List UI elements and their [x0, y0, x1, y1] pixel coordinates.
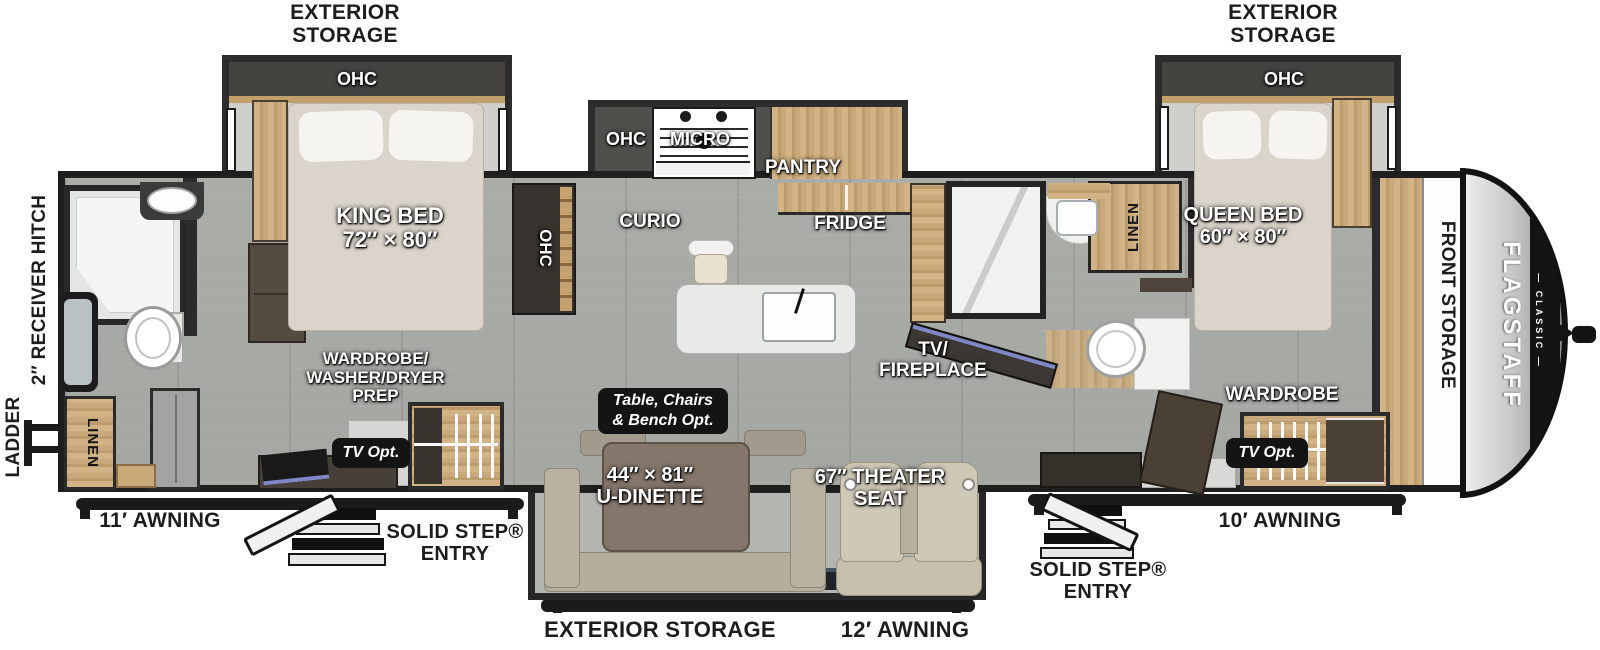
ladder-rung-top [28, 424, 60, 431]
label-line: U-DINETTE [565, 486, 735, 508]
theater-seat-label: 67″ THEATER SEAT [800, 466, 960, 510]
label-line: 67″ THEATER [800, 466, 960, 488]
queen-pillow-left [1201, 109, 1263, 161]
front-storage-label: FRONT STORAGE [1437, 190, 1457, 420]
queen-ohc-label: OHC [1254, 70, 1314, 90]
queen-slide-window-left [1159, 106, 1169, 170]
floorplan-canvas: EXTERIOR STORAGE EXTERIOR STORAGE LADDER… [0, 0, 1600, 650]
stove-knob-right [716, 111, 727, 122]
awning-front-label: 10′ AWNING [1200, 510, 1360, 533]
label-line: KING BED [310, 204, 470, 228]
king-slide-window-left [226, 108, 236, 172]
awning-mid-label: 12′ AWNING [830, 618, 980, 642]
ladder-label: LADDER [4, 384, 24, 490]
fridge-door-seam [845, 185, 848, 210]
rear-vanity-sink [147, 187, 197, 214]
island-stool-seat [694, 254, 728, 284]
king-side-cabinet [252, 100, 288, 242]
entry-front-label: SOLID STEP® ENTRY [1018, 560, 1178, 603]
label-line: STORAGE [1183, 25, 1383, 48]
rear-toilet-seat [135, 317, 171, 359]
oven-drawer [656, 161, 750, 175]
rear-window-glass [64, 299, 92, 385]
front-wardrobe-shelves [1326, 418, 1384, 484]
king-bed-label: KING BED 72″ × 80″ [310, 204, 470, 252]
theater-backrest [836, 556, 982, 596]
awning-rail-mid [541, 599, 975, 612]
rear-hanging-wardrobe [408, 402, 504, 490]
label-line: & Bench Opt. [612, 411, 713, 431]
label-line: SOLID STEP® [1018, 560, 1178, 582]
label-line: Table, Chairs [613, 391, 713, 411]
label-line: EXTERIOR [1183, 2, 1383, 25]
entry-rear-label: SOLID STEP® ENTRY [385, 522, 525, 565]
fridge-cabinet [778, 183, 912, 215]
curio-ohc-label: OHC [534, 208, 554, 288]
mid-sink [1056, 200, 1098, 236]
king-ohc-label: OHC [327, 70, 387, 90]
label-line: ENTRY [1018, 582, 1178, 604]
bottom-exterior-storage-label: EXTERIOR STORAGE [535, 618, 785, 642]
mid-sink-shelf [1048, 183, 1110, 199]
dinette-cushion-right [744, 430, 806, 456]
label-line: QUEEN BED [1168, 204, 1318, 226]
queen-slide-window-right [1387, 106, 1397, 170]
tv-fireplace-label: TV/ FIREPLACE [873, 340, 993, 382]
dinette-label: 44″ × 81″ U-DINETTE [565, 464, 735, 508]
mid-toilet-seat [1092, 326, 1139, 371]
hitch-knob-icon [1572, 326, 1596, 343]
table-option-badge: Table, Chairs & Bench Opt. [598, 388, 728, 434]
rear-slide-exterior-storage-label: EXTERIOR STORAGE [245, 2, 445, 47]
stove-knob-left [680, 111, 691, 122]
mid-half-wall [1140, 278, 1192, 292]
label-line: FIREPLACE [873, 361, 993, 382]
mid-shower-door-seam [952, 187, 1040, 313]
front-tv-opt-badge: TV Opt. [1226, 438, 1308, 468]
label-line: 60″ × 80″ [1168, 226, 1318, 248]
curio-shelves [560, 187, 572, 311]
queen-pillow-right [1267, 109, 1329, 161]
rear-toilet [124, 306, 182, 370]
rear-step-3 [292, 538, 384, 550]
queen-side-cabinet [1332, 98, 1372, 228]
brand-flagstaff: FLAGSTAFF [1499, 215, 1525, 435]
front-slide-exterior-storage-label: EXTERIOR STORAGE [1183, 2, 1383, 47]
label-line: WASHER/DRYER [283, 369, 468, 388]
front-step-4 [1040, 547, 1134, 559]
rear-linen-label: LINEN [81, 403, 101, 483]
rear-wardrobe-label: WARDROBE/ WASHER/DRYER PREP [283, 350, 468, 406]
washer-dryer-cabinet [150, 388, 200, 490]
micro-label: MICRO [658, 130, 742, 150]
king-slide-window-right [498, 108, 508, 172]
label-line: EXTERIOR [245, 2, 445, 25]
king-pillow-right [387, 109, 475, 164]
mid-bath-cabinet [910, 183, 946, 323]
fridge-label: FRIDGE [806, 214, 894, 235]
label-line: SOLID STEP® [385, 522, 525, 544]
label-line: 72″ × 80″ [310, 228, 470, 252]
label-line: 44″ × 81″ [565, 464, 735, 486]
curio-label: CURIO [610, 212, 690, 233]
theater-cupholder-right [962, 478, 975, 491]
entry-desk [1040, 452, 1142, 488]
label-line: TV/ [873, 340, 993, 361]
rail-foot-2 [508, 508, 518, 519]
mid-linen-label: LINEN [1125, 187, 1145, 267]
step-stool [116, 464, 156, 488]
label-line: PREP [283, 387, 468, 406]
receiver-hitch-label: 2″ RECEIVER HITCH [30, 180, 50, 400]
mid-shower [946, 181, 1046, 319]
rail-foot-4 [1392, 504, 1402, 515]
awning-rear-label: 11′ AWNING [75, 510, 245, 533]
label-line: SEAT [800, 488, 960, 510]
rear-window [58, 292, 98, 392]
wardrobe-hangers [446, 414, 496, 478]
label-line: STORAGE [245, 25, 445, 48]
pantry-label: PANTRY [757, 158, 849, 179]
label-line: WARDROBE/ [283, 350, 468, 369]
washer-dryer-door-seam [175, 395, 177, 483]
rear-step-4 [288, 553, 386, 566]
dinette-bench-bottom [544, 552, 826, 592]
rear-tv-opt-badge: TV Opt. [332, 438, 410, 468]
wardrobe-open-shelf [414, 408, 442, 484]
king-pillow-left [297, 109, 385, 164]
kitchen-ohc-label: OHC [600, 130, 652, 150]
ladder-rung-bottom [28, 446, 60, 453]
brand-classic: — CLASSIC — [1530, 261, 1544, 381]
label-line: ENTRY [385, 544, 525, 566]
front-wardrobe-label: WARDROBE [1212, 385, 1352, 406]
queen-bed-label: QUEEN BED 60″ × 80″ [1168, 204, 1318, 248]
